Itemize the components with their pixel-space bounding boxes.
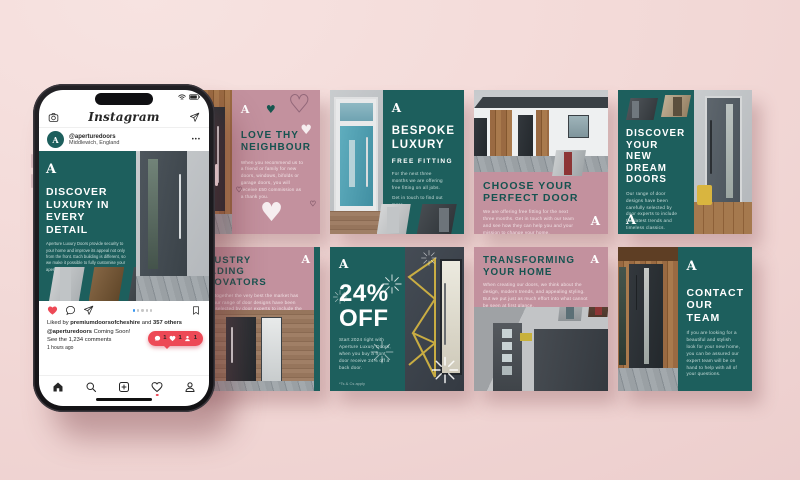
profile-icon[interactable] bbox=[184, 381, 196, 393]
footnote: *Ts & Cs apply bbox=[339, 381, 365, 386]
heart-outline-icon: ♥ bbox=[310, 201, 316, 208]
geometric-door-photo bbox=[405, 247, 464, 391]
grey-door bbox=[140, 151, 187, 277]
location[interactable]: Middlewich, England bbox=[69, 140, 119, 146]
post-body: For the next three months we are offerin… bbox=[392, 171, 446, 192]
post-design-panel: A DISCOVER LUXURY IN EVERY DETAIL Apertu… bbox=[39, 151, 136, 301]
inset-photo bbox=[558, 307, 584, 321]
feed-post-image[interactable]: A DISCOVER LUXURY IN EVERY DETAIL Apertu… bbox=[39, 151, 209, 301]
contact-panel: A CONTACT OUR TEAM If you are looking fo… bbox=[678, 247, 752, 391]
post-title: DISCOVER YOUR NEW DREAM DOORS bbox=[626, 128, 686, 186]
brand-logo: A bbox=[686, 259, 696, 274]
inset-photo bbox=[588, 307, 608, 317]
firework-icon bbox=[332, 289, 348, 305]
home-icon[interactable] bbox=[52, 381, 64, 393]
yellow-planter bbox=[520, 333, 532, 341]
wifi-icon bbox=[178, 94, 186, 100]
more-options-icon[interactable]: ••• bbox=[192, 137, 201, 143]
house-photo bbox=[474, 90, 608, 172]
activity-badge-dot bbox=[156, 394, 159, 397]
firework-icon bbox=[369, 339, 395, 365]
transforming-panel: TRANSFORMING YOUR HOME A When creating o… bbox=[474, 247, 608, 307]
volume-down-button[interactable] bbox=[31, 174, 34, 188]
post-title: TRANSFORMING YOUR HOME bbox=[483, 255, 578, 278]
instagram-header: Instagram bbox=[39, 107, 209, 128]
carousel-dots bbox=[133, 309, 153, 311]
heart-icon: ♥ bbox=[260, 200, 283, 226]
inset-photo bbox=[552, 150, 586, 176]
brand-logo: A bbox=[590, 254, 599, 265]
brand-logo: A bbox=[626, 214, 636, 227]
bookmark-icon[interactable] bbox=[191, 305, 201, 316]
choose-panel: CHOOSE YOUR PERFECT DOOR We are offering… bbox=[474, 172, 608, 234]
comment-icon bbox=[154, 335, 161, 342]
activity-icon bbox=[151, 381, 163, 393]
bespoke-panel: A BESPOKE LUXURY FREE FITTING For the ne… bbox=[383, 90, 464, 234]
dream-panel: DISCOVER YOUR NEW DREAM DOORS Our range … bbox=[618, 90, 694, 234]
side-glass bbox=[619, 267, 626, 365]
teal-edge-stripe bbox=[314, 247, 320, 391]
post-title: BESPOKE LUXURY bbox=[392, 125, 455, 152]
brand-logo: A bbox=[241, 103, 250, 116]
wood-floor bbox=[694, 202, 752, 234]
yellow-bench bbox=[697, 185, 712, 205]
front-door bbox=[226, 317, 255, 382]
brick-step bbox=[330, 211, 383, 234]
instagram-wordmark: Instagram bbox=[88, 110, 159, 124]
username[interactable]: @aperturedoors bbox=[69, 134, 119, 140]
action-bar bbox=[39, 301, 209, 318]
avatar[interactable]: A bbox=[47, 131, 64, 148]
post-title: CHOOSE YOUR PERFECT DOOR bbox=[483, 180, 599, 205]
post-transforming-your-home: TRANSFORMING YOUR HOME A When creating o… bbox=[474, 247, 608, 391]
garage-door bbox=[474, 118, 487, 157]
paving bbox=[136, 276, 209, 302]
dark-door bbox=[629, 264, 663, 368]
battery-icon bbox=[189, 94, 200, 100]
activity-tab[interactable] bbox=[151, 381, 163, 393]
heart-icon bbox=[169, 335, 176, 342]
post-subtitle: FREE FITTING bbox=[392, 158, 455, 166]
side-window bbox=[261, 317, 282, 384]
volume-up-button[interactable] bbox=[31, 154, 34, 168]
likes-line[interactable]: Liked by premiumdoorsofcheshire and 357 … bbox=[47, 319, 201, 328]
window bbox=[568, 115, 589, 138]
door-frame bbox=[336, 99, 376, 211]
wood-column bbox=[536, 110, 549, 158]
mini-photo bbox=[626, 98, 658, 120]
post-contact-our-team: A CONTACT OUR TEAM If you are looking fo… bbox=[618, 247, 752, 391]
heart-icon: ♥ bbox=[300, 124, 312, 137]
blue-door bbox=[340, 126, 374, 207]
post-meta: Liked by premiumdoorsofcheshire and 357 … bbox=[39, 318, 209, 353]
brand-logo: A bbox=[46, 162, 56, 177]
share-icon[interactable] bbox=[83, 305, 94, 316]
timestamp: 1 hours ago bbox=[47, 345, 201, 353]
post-bespoke-luxury: A BESPOKE LUXURY FREE FITTING For the ne… bbox=[330, 90, 464, 234]
post-body: We are offering free fitting for the nex… bbox=[483, 209, 576, 234]
mini-photo bbox=[661, 95, 691, 117]
status-bar bbox=[178, 94, 200, 100]
post-header: A @aperturedoors Middlewich, England ••• bbox=[39, 128, 209, 151]
modern-house-photo bbox=[474, 307, 608, 391]
sale-panel: A 24% OFF Start 2024 right with Aperture… bbox=[330, 247, 405, 391]
driveway bbox=[474, 156, 608, 172]
front-door bbox=[493, 323, 522, 391]
love-panel: A LOVE THY NEIGHBOUR When you recommend … bbox=[232, 90, 320, 234]
mini-photo bbox=[377, 204, 411, 234]
transom-window bbox=[340, 103, 374, 121]
mini-photo bbox=[417, 204, 457, 234]
new-post-icon[interactable] bbox=[118, 381, 130, 393]
post-discover-dream-doors: DISCOVER YOUR NEW DREAM DOORS Our range … bbox=[618, 90, 752, 234]
blue-door-photo bbox=[330, 90, 383, 234]
wood-column bbox=[490, 110, 511, 158]
bottom-nav bbox=[39, 375, 209, 395]
wood-door-photo bbox=[618, 247, 678, 391]
wood-header bbox=[618, 247, 678, 261]
search-icon[interactable] bbox=[85, 381, 97, 393]
door-photo bbox=[136, 151, 209, 301]
firework-icon bbox=[420, 249, 438, 267]
direct-message-icon[interactable] bbox=[189, 112, 200, 123]
post-body: If you are looking for a beautiful and s… bbox=[686, 330, 741, 378]
paving bbox=[618, 368, 678, 391]
phone-screen: Instagram A @aperturedoors Middlewich, E… bbox=[39, 90, 209, 406]
follower-icon bbox=[184, 335, 191, 342]
brand-logo: A bbox=[301, 254, 310, 265]
heart-outline-icon: ♥ bbox=[236, 187, 242, 194]
phone-mockup: Instagram A @aperturedoors Middlewich, E… bbox=[33, 84, 215, 412]
notch bbox=[95, 93, 153, 105]
brand-logo: A bbox=[339, 257, 348, 271]
post-title: DISCOVER LUXURY IN EVERY DETAIL bbox=[46, 186, 129, 236]
brand-logo: A bbox=[392, 101, 401, 115]
home-indicator[interactable] bbox=[96, 398, 152, 401]
post-title: CONTACT OUR TEAM bbox=[686, 287, 744, 324]
post-body: When you recommend us to a friend or fam… bbox=[241, 160, 306, 201]
post-24-percent-off: A 24% OFF Start 2024 right with Aperture… bbox=[330, 247, 464, 391]
firework-icon bbox=[430, 355, 460, 385]
comment-icon[interactable] bbox=[65, 305, 76, 316]
heart-outline-icon: ♥ bbox=[288, 92, 310, 116]
camera-icon[interactable] bbox=[48, 112, 59, 123]
entrance-door bbox=[518, 115, 533, 158]
heart-icon: ♥ bbox=[266, 104, 276, 115]
garage bbox=[534, 329, 608, 391]
post-body: When creating our doors, we think about … bbox=[483, 282, 592, 310]
notification-badge[interactable]: 1 1 1 bbox=[148, 331, 203, 346]
power-button[interactable] bbox=[215, 164, 218, 186]
grey-door-photo bbox=[694, 90, 752, 234]
firework-icon bbox=[381, 273, 403, 295]
post-choose-your-perfect-door: CHOOSE YOUR PERFECT DOOR We are offering… bbox=[474, 90, 608, 234]
like-icon[interactable] bbox=[47, 305, 58, 316]
sale-title-line2: OFF bbox=[339, 306, 396, 331]
brand-logo: A bbox=[591, 215, 600, 227]
